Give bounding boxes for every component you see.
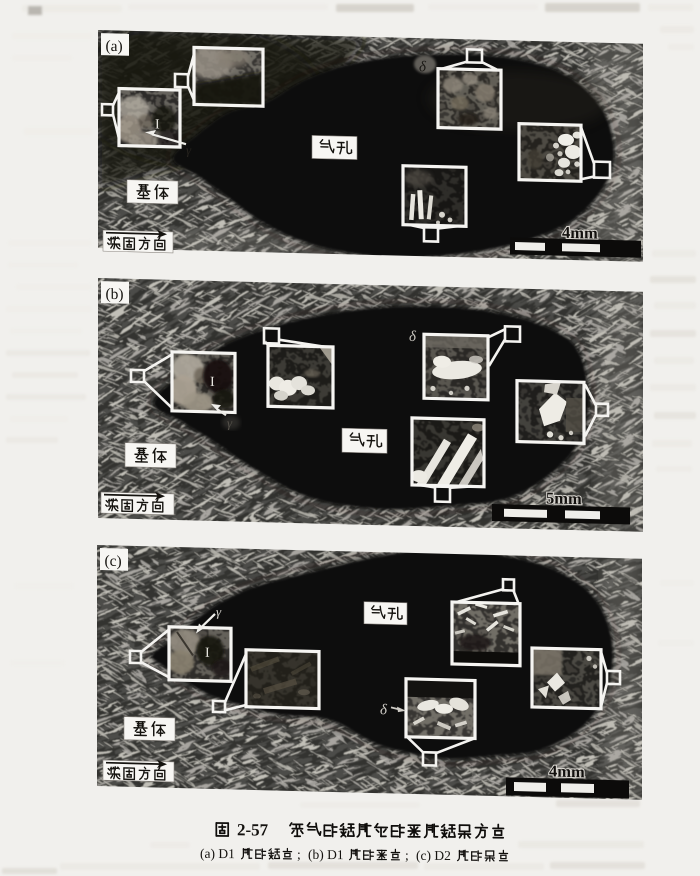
svg-text:5mm: 5mm [546,488,582,508]
svg-text:I: I [205,646,210,661]
svg-text:2-57: 2-57 [237,820,269,839]
svg-text:(c) D2: (c) D2 [416,848,451,863]
svg-text:γ: γ [186,142,192,157]
svg-text:γ: γ [216,604,222,619]
svg-text:4mm: 4mm [562,223,598,243]
svg-text:;: ; [405,848,409,863]
svg-text:(a) D1: (a) D1 [200,846,235,861]
svg-text:δ: δ [409,329,417,345]
svg-text:;: ; [297,847,301,862]
svg-text:(b): (b) [106,286,124,303]
svg-text:δ: δ [419,59,427,75]
svg-text:4mm: 4mm [549,761,585,781]
svg-text:(a): (a) [106,38,123,55]
svg-text:I: I [210,375,215,390]
svg-text:(b) D1: (b) D1 [308,847,344,862]
svg-text:γ: γ [227,415,233,430]
svg-text:(c): (c) [105,553,122,570]
svg-text:δ: δ [380,702,388,718]
